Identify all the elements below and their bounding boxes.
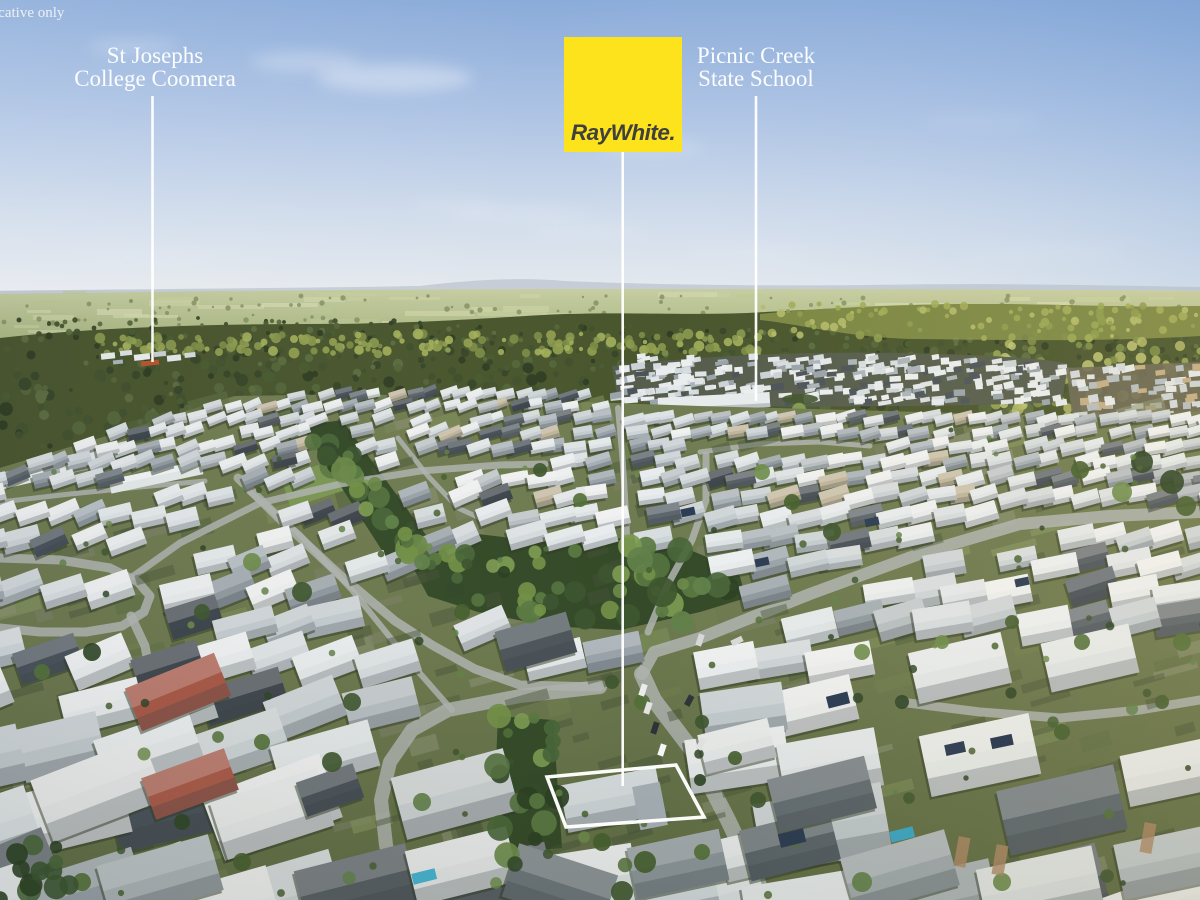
svg-text:Picnic Creek: Picnic Creek <box>697 43 816 68</box>
svg-text:RayWhite.: RayWhite. <box>571 120 675 145</box>
svg-text:Indicative only: Indicative only <box>0 5 65 21</box>
svg-text:St Josephs: St Josephs <box>107 43 204 68</box>
svg-text:College Coomera: College Coomera <box>74 66 236 91</box>
svg-text:State School: State School <box>698 66 814 91</box>
